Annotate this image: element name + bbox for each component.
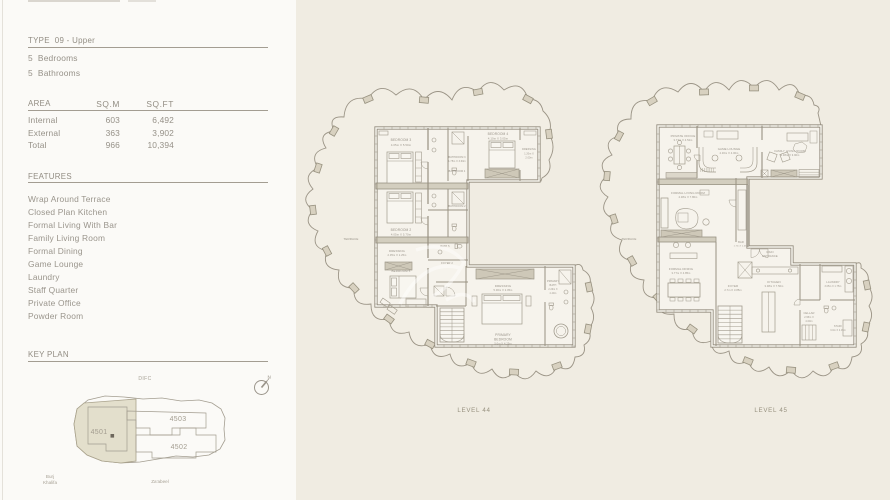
svg-text:3.77m X 4.52m: 3.77m X 4.52m bbox=[674, 138, 693, 142]
svg-text:FOYER: FOYER bbox=[728, 284, 738, 288]
svg-text:BEDROOM 3: BEDROOM 3 bbox=[391, 138, 412, 142]
svg-text:2.20m X: 2.20m X bbox=[548, 289, 558, 291]
svg-text:MAIN: MAIN bbox=[766, 250, 773, 254]
svg-text:3.77m X 4.85m: 3.77m X 4.85m bbox=[672, 271, 691, 275]
svg-text:BEDROOM 5: BEDROOM 5 bbox=[392, 269, 411, 273]
svg-text:PRIMARY: PRIMARY bbox=[547, 280, 559, 283]
svg-text:FOYER 2: FOYER 2 bbox=[441, 261, 453, 265]
svg-text:4.38m X 7.80m: 4.38m X 7.80m bbox=[679, 195, 698, 199]
svg-text:LEVEL 44: LEVEL 44 bbox=[457, 407, 490, 414]
svg-text:BEDROOM: BEDROOM bbox=[494, 338, 512, 342]
svg-text:2.7m X 3.85m: 2.7m X 3.85m bbox=[724, 288, 741, 292]
svg-text:4501: 4501 bbox=[91, 429, 108, 436]
svg-text:2.95m X: 2.95m X bbox=[804, 316, 814, 319]
svg-text:KITCHEN: KITCHEN bbox=[767, 280, 780, 284]
svg-text:3.08m X 7.50m: 3.08m X 7.50m bbox=[765, 284, 784, 288]
svg-text:1.20m X: 1.20m X bbox=[524, 153, 534, 156]
svg-text:1.75m X 3.60m: 1.75m X 3.60m bbox=[448, 160, 466, 163]
svg-text:3.0m X 4.05m: 3.0m X 4.05m bbox=[830, 330, 846, 332]
svg-text:1.7m X 1.45m: 1.7m X 1.45m bbox=[734, 246, 749, 248]
svg-text:N: N bbox=[268, 375, 272, 381]
svg-text:BAR: BAR bbox=[738, 240, 744, 244]
svg-text:4.30m X 4.00m: 4.30m X 4.00m bbox=[720, 151, 739, 155]
svg-text:BEDROOM 2: BEDROOM 2 bbox=[391, 228, 412, 232]
svg-text:DIFC: DIFC bbox=[138, 376, 151, 382]
svg-text:TERRACE: TERRACE bbox=[621, 237, 636, 241]
svg-text:4502: 4502 bbox=[171, 444, 188, 451]
svg-text:LEVEL 45: LEVEL 45 bbox=[754, 407, 787, 414]
svg-text:PRIMARY: PRIMARY bbox=[495, 333, 511, 337]
svg-text:CELLAR: CELLAR bbox=[803, 311, 814, 315]
svg-text:BEDROOM 4: BEDROOM 4 bbox=[488, 132, 509, 136]
svg-text:BATHROOM 3: BATHROOM 3 bbox=[448, 156, 466, 159]
svg-text:BATHROOM 2: BATHROOM 2 bbox=[448, 205, 466, 208]
svg-text:DRESSING: DRESSING bbox=[522, 148, 536, 151]
svg-text:2.00m: 2.00m bbox=[525, 157, 532, 160]
svg-text:2.05m X 1.25m: 2.05m X 1.25m bbox=[388, 253, 407, 257]
svg-text:TERRACE: TERRACE bbox=[343, 237, 358, 241]
svg-text:Khalifa: Khalifa bbox=[43, 480, 57, 485]
svg-text:4.10m X 3.05m: 4.10m X 3.05m bbox=[488, 137, 509, 141]
svg-text:BATHROOM 4: BATHROOM 4 bbox=[449, 170, 466, 173]
svg-text:PRIVATE OFFICE: PRIVATE OFFICE bbox=[671, 134, 696, 138]
svg-text:3.05m X 1.75m: 3.05m X 1.75m bbox=[825, 286, 842, 288]
svg-text:LAUNDRY: LAUNDRY bbox=[826, 280, 840, 284]
svg-text:4503: 4503 bbox=[170, 416, 187, 423]
svg-text:GAME LOUNGE: GAME LOUNGE bbox=[718, 147, 741, 151]
svg-text:Burj: Burj bbox=[46, 474, 54, 479]
svg-text:4.00m: 4.00m bbox=[805, 320, 812, 323]
svg-text:Za'abeel: Za'abeel bbox=[151, 479, 168, 484]
svg-text:4.40m: 4.40m bbox=[550, 293, 557, 295]
svg-text:5.00m X 2.05m: 5.00m X 2.05m bbox=[494, 288, 513, 292]
svg-text:5.0m X 4.25m: 5.0m X 4.25m bbox=[494, 342, 511, 346]
svg-text:DRESSING: DRESSING bbox=[495, 284, 512, 288]
svg-text:BATH: BATH bbox=[550, 284, 557, 287]
svg-text:4.05m X 5.70m: 4.05m X 5.70m bbox=[391, 233, 412, 237]
svg-text:DRESSING: DRESSING bbox=[389, 249, 406, 253]
svg-text:4.05m X 5.50m: 4.05m X 5.50m bbox=[391, 143, 412, 147]
svg-text:ENTRANCE: ENTRANCE bbox=[762, 254, 778, 258]
svg-text:STAFF: STAFF bbox=[834, 325, 843, 328]
svg-text:FORMAL DINING: FORMAL DINING bbox=[669, 267, 694, 271]
